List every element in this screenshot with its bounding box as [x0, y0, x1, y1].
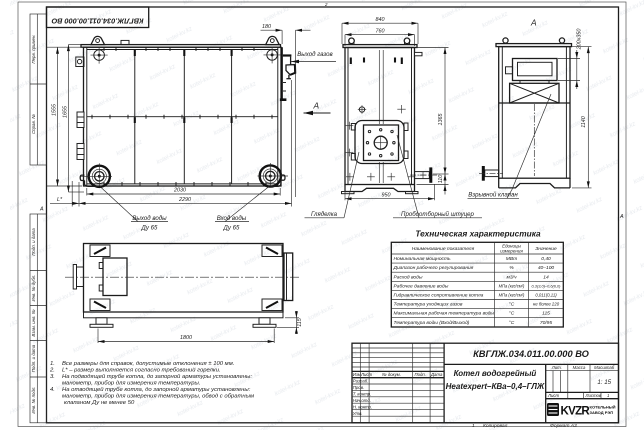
svg-text:Рабочее давление воды: Рабочее давление воды [394, 283, 449, 289]
svg-text:измерения: измерения [500, 249, 523, 254]
svg-text:L* – размер выполняется соглас: L* – размер выполняется согласно требова… [62, 367, 221, 374]
svg-text:Выход газов: Выход газов [297, 51, 333, 58]
svg-text:Ду 65: Ду 65 [223, 224, 240, 231]
svg-text:760: 760 [376, 28, 385, 34]
svg-text:1800: 1800 [180, 335, 192, 341]
svg-text:КОТЕЛЬНЫЙ: КОТЕЛЬНЫЙ [590, 405, 616, 410]
svg-text:На отводящей трубе котла, до з: На отводящей трубе котла, до запорной ар… [62, 386, 251, 393]
svg-text:Копировал: Копировал [483, 423, 508, 429]
svg-text:1.: 1. [50, 361, 55, 367]
svg-text:Максимальная рабочая температу: Максимальная рабочая температура воды [394, 311, 495, 317]
svg-text:°С: °С [509, 311, 515, 317]
svg-text:1: 1 [472, 423, 475, 429]
svg-text:2290: 2290 [178, 197, 191, 203]
svg-text:А: А [39, 207, 44, 213]
svg-text:№ докум.: № докум. [382, 372, 401, 377]
svg-text:Диапазон рабочего регулировани: Диапазон рабочего регулирования [393, 265, 474, 271]
svg-text:70/95: 70/95 [540, 320, 553, 326]
svg-text:Значение: Значение [535, 246, 557, 252]
svg-text:%: % [509, 265, 514, 271]
svg-text:Выход воды: Выход воды [132, 215, 167, 222]
svg-text:Масса: Масса [573, 365, 586, 370]
svg-text:манометр, прибор для измерения: манометр, прибор для измерения температу… [62, 394, 254, 400]
svg-text:1655: 1655 [63, 105, 69, 118]
svg-text:Дата: Дата [430, 372, 443, 377]
svg-text:1365: 1365 [438, 113, 444, 126]
svg-text:Расход воды: Расход воды [394, 274, 423, 280]
svg-text:0,3(3,0)–0,6(6,0): 0,3(3,0)–0,6(6,0) [532, 283, 562, 288]
svg-text:Перв. примен.: Перв. примен. [31, 34, 36, 63]
svg-text:KVZR: KVZR [561, 406, 591, 418]
svg-text:Наименование показателя: Наименование показателя [412, 246, 475, 252]
svg-text:0,011(0,11): 0,011(0,11) [535, 293, 557, 298]
svg-text:40–100: 40–100 [538, 265, 555, 271]
svg-text:Гляделка: Гляделка [311, 211, 338, 218]
svg-text:Взам. инв. №: Взам. инв. № [31, 309, 36, 336]
svg-text:Техническая характеристика: Техническая характеристика [415, 229, 541, 239]
svg-text:Вход воды: Вход воды [217, 215, 247, 222]
svg-text:1140: 1140 [581, 116, 587, 128]
svg-text:МПа (кгс/см²): МПа (кгс/см²) [499, 293, 525, 298]
svg-text:Листов: Листов [585, 393, 602, 398]
svg-text:Разраб.: Разраб. [353, 379, 369, 384]
svg-text:Пров.: Пров. [353, 385, 364, 390]
svg-text:180: 180 [262, 24, 271, 30]
svg-text:110: 110 [438, 175, 444, 184]
svg-text:0,40: 0,40 [541, 256, 551, 262]
svg-text:Номинальная мощность: Номинальная мощность [394, 256, 452, 262]
svg-text:А: А [619, 214, 624, 220]
svg-text:Утв.: Утв. [353, 411, 363, 416]
svg-text:А: А [530, 18, 537, 28]
svg-text:Температура воды (Вход/Выход): Температура воды (Вход/Выход) [394, 320, 470, 326]
svg-text:Взрывной клапан: Взрывной клапан [468, 192, 518, 199]
svg-text:Котел водогрейный: Котел водогрейный [454, 369, 537, 378]
svg-text:Масштаб: Масштаб [594, 365, 615, 370]
svg-text:4.: 4. [50, 387, 55, 393]
svg-text:Н. контр.: Н. контр. [353, 404, 372, 409]
svg-text:ЗАВОД РЭП: ЗАВОД РЭП [590, 410, 614, 415]
svg-text:1555: 1555 [52, 103, 58, 116]
svg-text:КВГЛЖ.034.011.00.000 ВО: КВГЛЖ.034.011.00.000 ВО [51, 17, 143, 26]
svg-text:3.: 3. [50, 374, 55, 380]
svg-text:Инв. № дубл.: Инв. № дубл. [31, 274, 36, 301]
svg-text:Heatexpert–КВа–0,4–ГЛЖ: Heatexpert–КВа–0,4–ГЛЖ [446, 382, 545, 391]
svg-text:Пробоотборный штуцер: Пробоотборный штуцер [401, 211, 475, 218]
svg-text:°С: °С [509, 302, 515, 308]
svg-text:115: 115 [542, 311, 550, 317]
svg-text:КВГЛЖ.034.011.00.000 ВО: КВГЛЖ.034.011.00.000 ВО [473, 349, 590, 359]
svg-text:2: 2 [324, 2, 328, 7]
svg-text:МПа (кгс/см²): МПа (кгс/см²) [499, 283, 525, 288]
svg-text:Т. контр.: Т. контр. [353, 391, 372, 396]
svg-text:2.: 2. [49, 368, 55, 374]
svg-text:2030: 2030 [173, 188, 186, 194]
svg-text:Лит.: Лит. [551, 365, 562, 370]
svg-text:Гидравлическое сопротивление к: Гидравлическое сопротивление котла [394, 293, 484, 299]
svg-text:L*: L* [57, 197, 63, 203]
svg-text:840: 840 [376, 17, 385, 23]
svg-text:°С: °С [509, 320, 515, 326]
svg-text:Температура уходящих газов: Температура уходящих газов [394, 302, 463, 308]
svg-text:м3/ч: м3/ч [507, 274, 517, 280]
svg-text:14: 14 [543, 274, 549, 280]
svg-text:Подп.: Подп. [415, 372, 426, 377]
svg-text:Подп. и дата: Подп. и дата [31, 228, 36, 256]
svg-text:манометр, прибор для измерения: манометр, прибор для измерения температу… [62, 381, 200, 387]
svg-text:Справ. №: Справ. № [31, 114, 36, 134]
svg-text:Лист: Лист [547, 393, 559, 398]
svg-text:115: 115 [297, 317, 303, 327]
svg-text:не более 220: не более 220 [533, 302, 560, 307]
svg-text:Инв. № подл.: Инв. № подл. [31, 386, 36, 413]
svg-text:Нач.отд.: Нач.отд. [353, 398, 371, 403]
svg-text:950: 950 [382, 192, 391, 198]
svg-text:На подводящей трубе котла, до: На подводящей трубе котла, до запорной а… [62, 373, 252, 380]
svg-text:Лист: Лист [360, 372, 372, 377]
svg-text:МВт: МВт [506, 256, 517, 262]
svg-text:200х350: 200х350 [577, 29, 583, 51]
svg-text:Ду 65: Ду 65 [141, 224, 158, 231]
svg-text:клапаном Ду не менее 50: клапаном Ду не менее 50 [64, 400, 135, 406]
svg-text:Все размеры для справок, допус: Все размеры для справок, допустимые откл… [62, 361, 234, 367]
svg-text:Формат А3: Формат А3 [550, 423, 577, 429]
svg-text:Подп. и дата: Подп. и дата [31, 344, 36, 372]
svg-text:1: 15: 1: 15 [597, 379, 611, 386]
svg-text:А: А [313, 101, 320, 111]
